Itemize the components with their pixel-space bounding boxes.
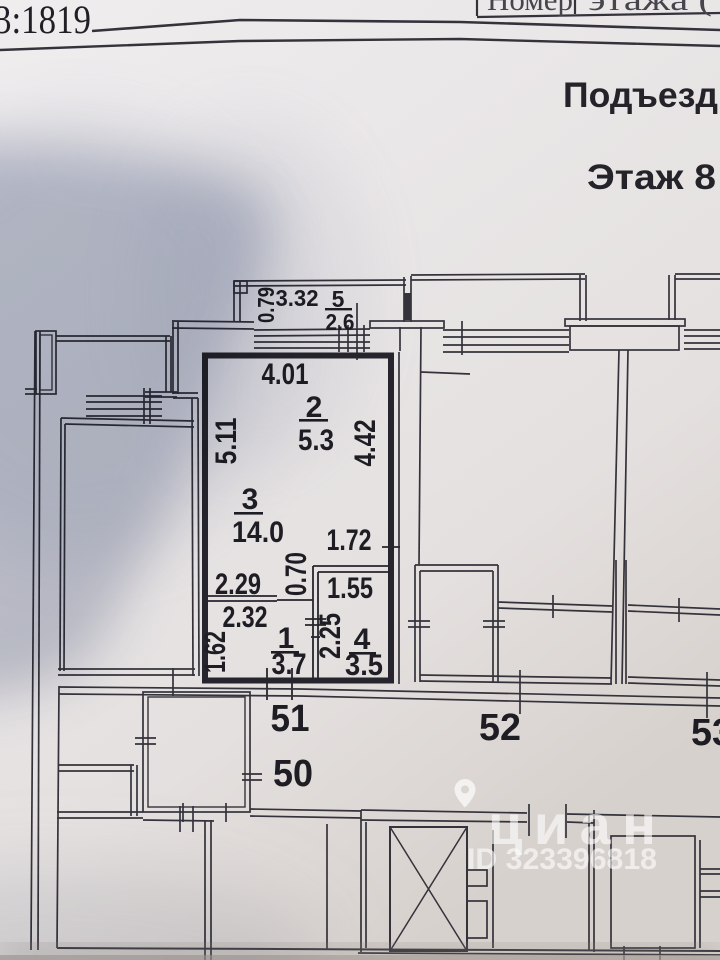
- svg-text:53: 53: [691, 712, 720, 754]
- svg-text:3:1819: 3:1819: [0, 0, 91, 42]
- svg-text:2.32: 2.32: [223, 601, 268, 634]
- svg-text:этажа (: этажа (: [588, 0, 712, 17]
- svg-text:1.72: 1.72: [327, 524, 372, 557]
- svg-text:2.25: 2.25: [314, 613, 347, 659]
- svg-text:3: 3: [242, 483, 259, 516]
- svg-text:Номер: Номер: [487, 0, 573, 17]
- svg-text:4.42: 4.42: [349, 420, 382, 467]
- svg-text:2.29: 2.29: [215, 568, 261, 601]
- svg-text:3.5: 3.5: [345, 649, 383, 682]
- svg-text:0.70: 0.70: [280, 552, 313, 596]
- svg-text:3.7: 3.7: [272, 648, 307, 681]
- svg-text:14.0: 14.0: [232, 516, 284, 549]
- svg-text:1.62: 1.62: [199, 631, 232, 673]
- svg-text:51: 51: [271, 698, 310, 740]
- svg-text:1.55: 1.55: [327, 572, 373, 605]
- svg-text:Подъезд: Подъезд: [563, 76, 718, 115]
- svg-text:50: 50: [273, 753, 313, 795]
- svg-text:ID 323396818: ID 323396818: [467, 843, 657, 876]
- svg-text:Этаж 8: Этаж 8: [587, 158, 716, 197]
- svg-text:52: 52: [479, 707, 521, 749]
